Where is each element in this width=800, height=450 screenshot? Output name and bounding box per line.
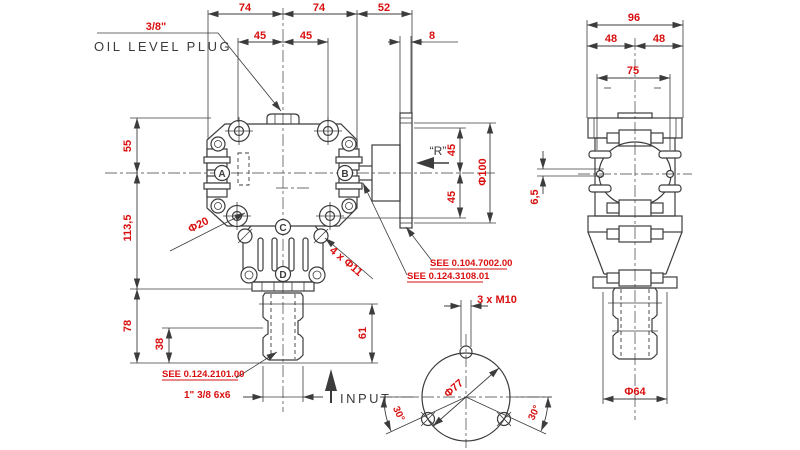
label-oil-level-plug: OIL LEVEL PLUG	[94, 39, 232, 54]
dim-48-right: 48	[653, 33, 665, 45]
label-see-3108: SEE 0.124.3108.01	[407, 271, 490, 282]
dim-48-left: 48	[605, 33, 617, 45]
dim-30-left: 30°	[390, 405, 406, 423]
dim-8: 8	[429, 30, 435, 42]
label-input: INPUT	[340, 391, 392, 406]
dim-75: 75	[627, 65, 639, 77]
label-4xphi11: 4 x Φ11	[327, 245, 365, 279]
dim-52: 52	[378, 2, 390, 14]
dim-phi100: Φ100	[477, 158, 489, 185]
drawing-sheet: A B C D 74 74 52 45 45 8 55 113,5 78 38 …	[0, 0, 800, 450]
dim-61: 61	[357, 327, 369, 339]
balloon-c: C	[279, 223, 286, 234]
label-oil-plug-size: 3/8"	[146, 21, 167, 33]
input-arrow	[325, 369, 337, 391]
dim-45-left: 45	[254, 30, 266, 42]
front-view-dimensions	[130, 10, 496, 402]
label-see-7002: SEE 0.104.7002.00	[430, 258, 512, 269]
dim-74-right: 74	[313, 2, 326, 14]
dim-38: 38	[154, 338, 166, 350]
dim-96: 96	[628, 12, 640, 24]
dim-phi64: Φ64	[624, 386, 646, 398]
label-spline: 1" 3/8 6x6	[184, 390, 231, 401]
balloon-a: A	[218, 169, 225, 180]
label-3xm10: 3 x M10	[477, 294, 517, 306]
corner-bolts	[223, 117, 344, 230]
balloon-d: D	[279, 270, 286, 281]
dim-45-right: 45	[300, 30, 312, 42]
balloon-b: B	[341, 169, 348, 180]
label-see-2101: SEE 0.124.2101.00	[162, 369, 244, 380]
output-flange	[359, 113, 412, 228]
dim-74-left: 74	[239, 2, 252, 14]
dimension-texts: 74 74 52 45 45 8 55 113,5 78 38 45 45 Φ1…	[94, 2, 665, 423]
label-rotation-mark: “R”	[430, 144, 447, 158]
dim-45-flange-top: 45	[446, 144, 458, 156]
front-view-housing	[204, 113, 412, 360]
keyway-dashed	[238, 153, 249, 185]
dim-78: 78	[122, 320, 134, 332]
rotation-arrow	[416, 157, 434, 169]
dim-6-5: 6,5	[529, 189, 541, 204]
edge-bolts	[211, 137, 356, 213]
dim-113-5: 113,5	[122, 215, 134, 242]
dim-30-right: 30°	[527, 404, 543, 422]
gearbox-technical-drawing: A B C D 74 74 52 45 45 8 55 113,5 78 38 …	[0, 0, 800, 450]
dim-45-flange-bottom: 45	[446, 191, 458, 203]
dim-55: 55	[122, 140, 134, 152]
